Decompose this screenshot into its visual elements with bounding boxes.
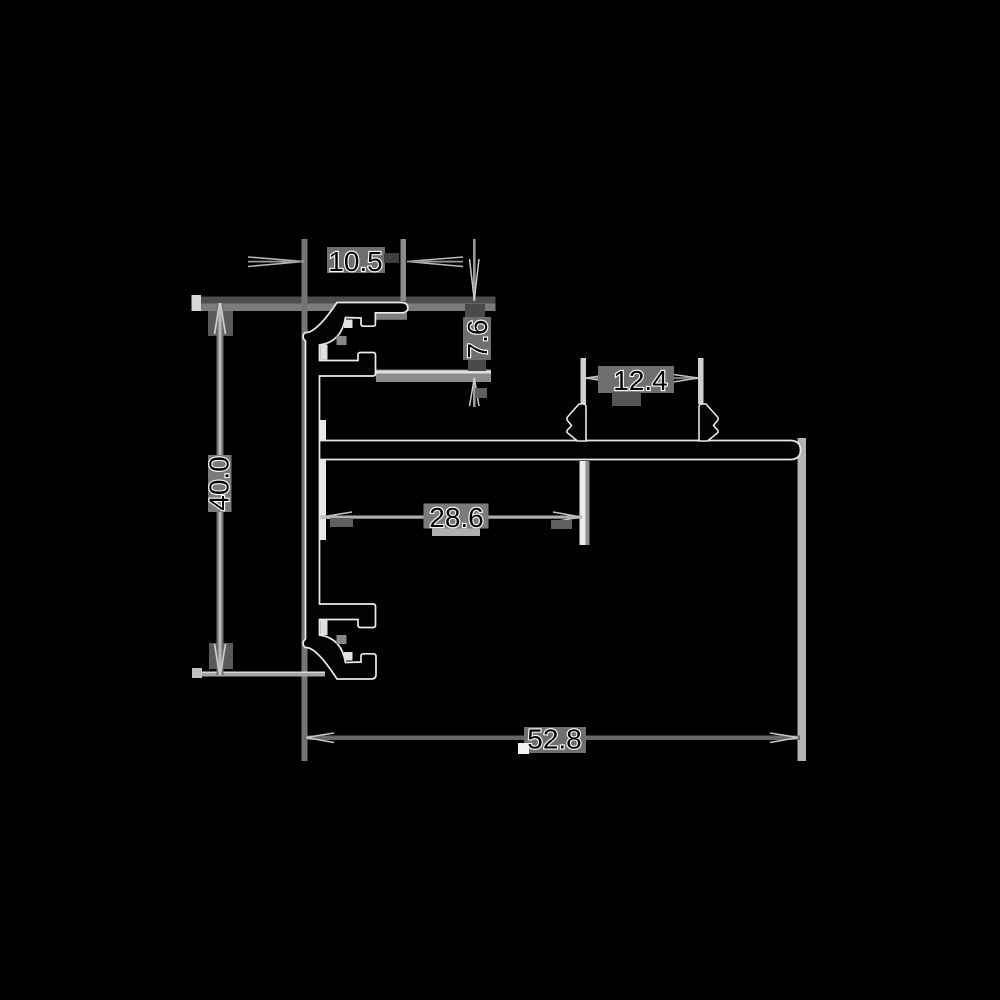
svg-text:7.6: 7.6	[462, 320, 493, 359]
svg-text:52.8: 52.8	[527, 724, 582, 755]
svg-text:10.5: 10.5	[328, 246, 383, 277]
svg-text:28.6: 28.6	[429, 502, 484, 533]
svg-text:40.0: 40.0	[204, 456, 235, 511]
svg-text:12.4: 12.4	[613, 365, 668, 396]
